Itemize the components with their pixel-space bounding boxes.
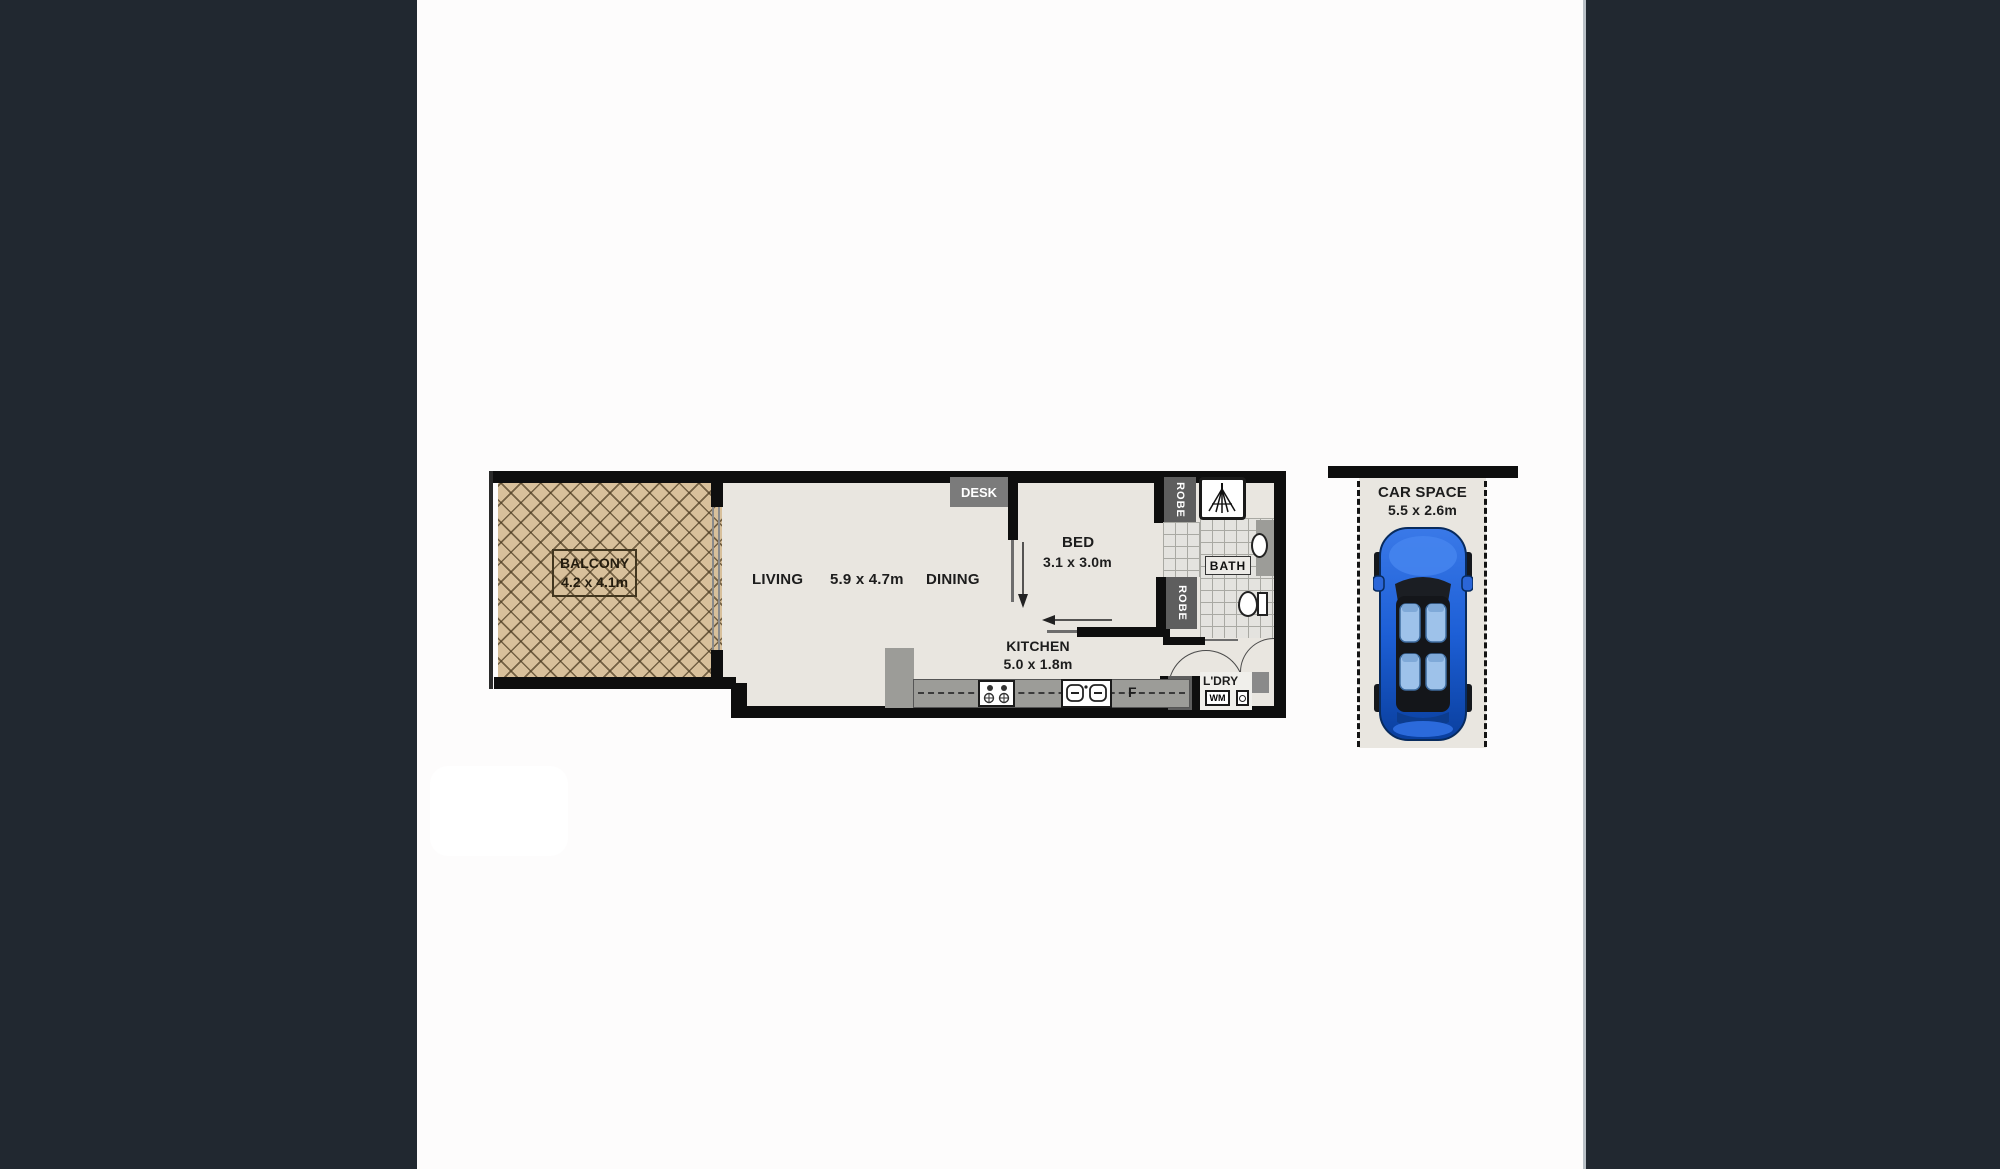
car-icon (1373, 524, 1473, 744)
laundry-label: L'DRY (1203, 674, 1238, 688)
shower-icon (1202, 480, 1243, 517)
kitchen-dims-label: 5.0 x 1.8m (993, 656, 1083, 672)
panel-right-edge (1583, 0, 1586, 1169)
toilet-icon (1238, 591, 1258, 617)
robe-top-fixture: ROBE (1164, 477, 1196, 523)
kitchen-counter (913, 679, 1190, 708)
bed-dims-label: 3.1 x 3.0m (1043, 554, 1112, 570)
door-arrow-down-icon (1016, 542, 1030, 610)
robe-bottom-wall (1156, 577, 1166, 629)
fridge-label: F (1128, 684, 1137, 700)
car-space-dash-left (1357, 481, 1360, 747)
dining-label: DINING (926, 571, 980, 588)
counter-dash-line (918, 692, 1185, 694)
bed-slider-door (1011, 540, 1014, 602)
sink-icon (1061, 679, 1112, 708)
entry-door-leaf (1252, 672, 1269, 693)
bath-door-line (1205, 639, 1238, 641)
balcony-divider-top (711, 483, 723, 507)
shower-box (1199, 477, 1246, 520)
balcony-label: BALCONY 4.2 x 4.1m (552, 549, 637, 597)
bath-entry-tiles (1163, 522, 1200, 577)
robe-top-wall (1154, 477, 1164, 523)
basin-icon (1251, 533, 1268, 558)
page-background: LIVING 5.9 x 4.7m DINING DESK BED 3.1 x … (0, 0, 2000, 1169)
right-wall (1274, 471, 1286, 718)
bath-label: BATH (1205, 556, 1251, 575)
balcony-slider-door (712, 507, 720, 650)
bed-bottom-slider (1047, 630, 1077, 633)
washing-machine-icon: WM (1205, 690, 1230, 706)
balcony-bottom-wall (494, 677, 736, 689)
robe-bottom-fixture: ROBE (1166, 577, 1197, 629)
living-label: LIVING (752, 571, 803, 588)
balcony-divider-bottom (711, 650, 723, 679)
desk-fixture: DESK (950, 477, 1008, 507)
car-space-dims-label: 5.5 x 2.6m (1360, 502, 1485, 518)
pantry-wall-right (1192, 676, 1200, 710)
balcony-left-wall (489, 471, 493, 689)
laundry-tub-icon (1236, 690, 1249, 706)
kitchen-pillar (885, 648, 914, 708)
bed-label: BED (1062, 534, 1094, 551)
car-space-label: CAR SPACE (1360, 484, 1485, 501)
car-space-wall (1328, 466, 1518, 478)
bath-bottom-wall (1163, 637, 1205, 645)
living-dims-label: 5.9 x 4.7m (830, 571, 904, 588)
kitchen-label: KITCHEN (993, 638, 1083, 654)
car-space-dash-right (1484, 481, 1487, 747)
faint-watermark (430, 766, 568, 856)
bed-partition-wall (1008, 483, 1018, 540)
door-arrow-left-icon (1042, 613, 1114, 627)
toilet-tank (1257, 592, 1268, 616)
stove-icon (978, 680, 1015, 707)
